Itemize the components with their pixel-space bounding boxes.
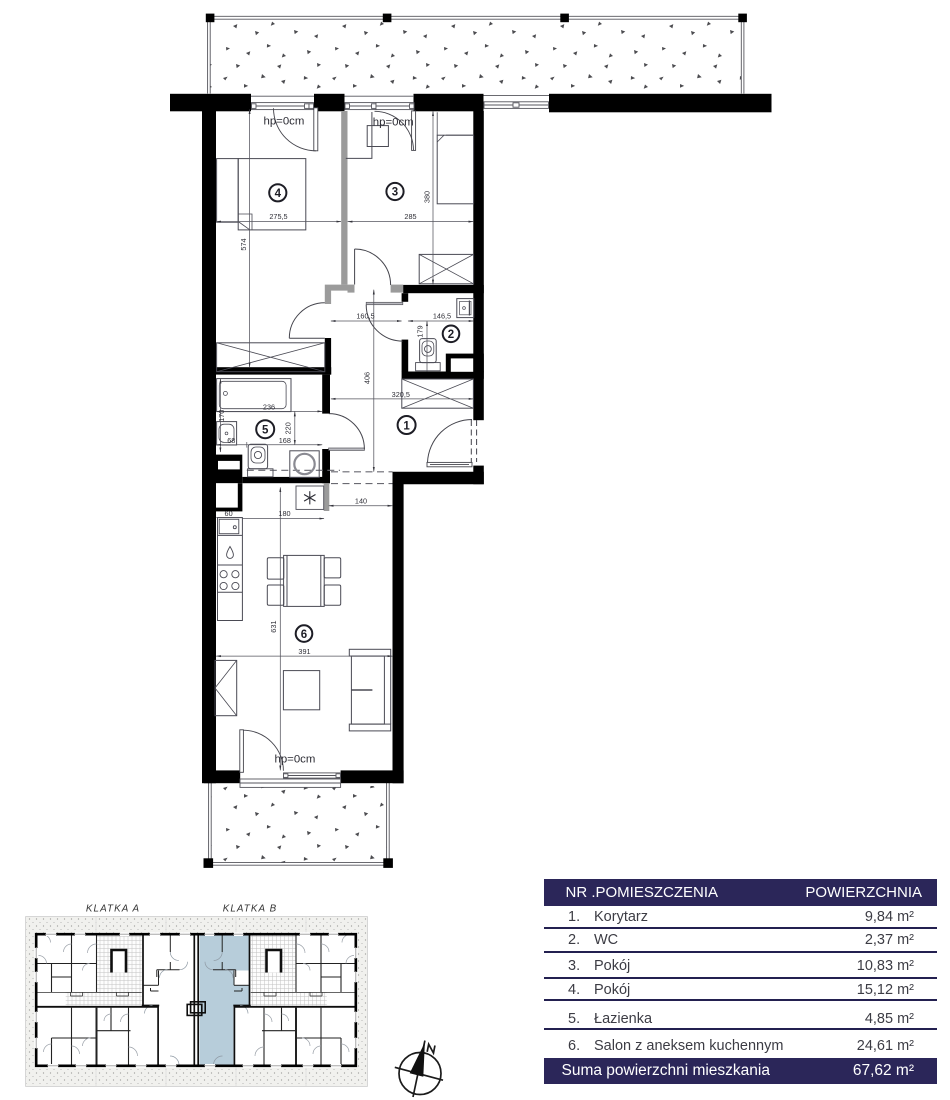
svg-text:170: 170 [217,410,226,422]
svg-text:140: 140 [355,496,367,505]
svg-text:179: 179 [415,325,424,337]
svg-text:391: 391 [298,647,310,656]
svg-text:4: 4 [275,188,282,200]
svg-text:1: 1 [403,420,410,432]
svg-text:KLATKA B: KLATKA B [223,904,278,915]
svg-text:275,5: 275,5 [269,212,287,221]
svg-text:574: 574 [239,238,248,250]
svg-text:hp=0cm: hp=0cm [264,115,305,127]
svg-text:631: 631 [269,621,278,633]
svg-text:6: 6 [301,629,307,641]
svg-text:5: 5 [262,425,269,437]
svg-text:146,5: 146,5 [433,311,451,320]
svg-text:3: 3 [392,187,398,199]
svg-text:406: 406 [363,372,372,384]
svg-text:220: 220 [284,422,293,434]
svg-text:168: 168 [279,436,291,445]
svg-text:2: 2 [448,329,454,341]
svg-text:285: 285 [404,212,416,221]
svg-text:380: 380 [423,191,432,203]
svg-text:KLATKA A: KLATKA A [86,904,140,915]
svg-text:160,5: 160,5 [356,312,374,321]
svg-text:60: 60 [225,509,233,518]
svg-text:68: 68 [227,436,235,445]
svg-text:320,5: 320,5 [392,390,410,399]
svg-text:hp=0cm: hp=0cm [373,116,414,128]
svg-text:236: 236 [263,402,275,411]
svg-text:180: 180 [278,509,290,518]
svg-text:hp=0cm: hp=0cm [275,753,316,765]
